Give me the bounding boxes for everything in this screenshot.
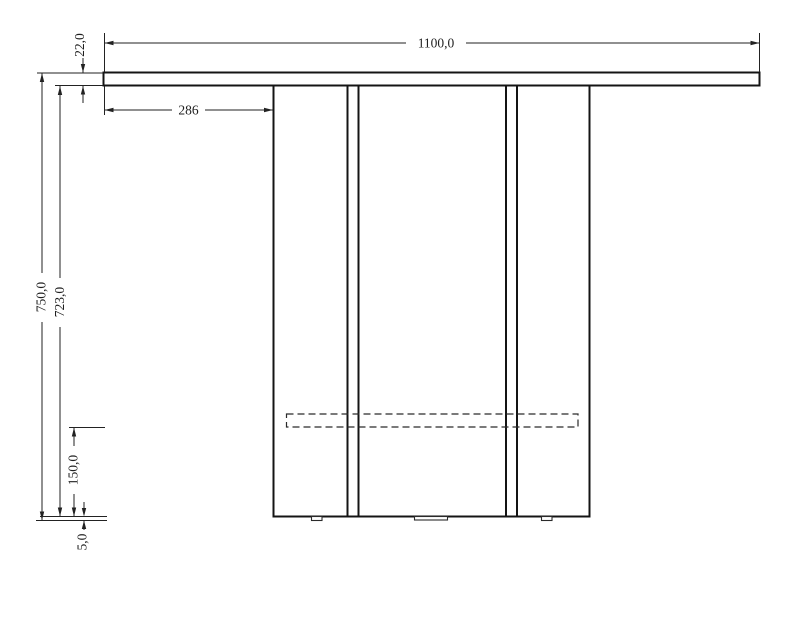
arrowhead-right-icon [751, 41, 760, 45]
arrowhead-down-icon [58, 508, 62, 517]
tabletop [104, 73, 760, 86]
dim-label-base-height: 723,0 [52, 287, 67, 318]
dim-overhang: 286 [105, 86, 274, 118]
dim-tabletop-thickness: 22,0 [72, 33, 87, 103]
table-elevation-drawing: 1100,0 22,0 286 750,0 [0, 0, 800, 621]
technical-drawing-page: 1100,0 22,0 286 750,0 [0, 0, 800, 621]
arrowhead-up-icon [72, 428, 76, 437]
dim-label-tabletop-width: 1100,0 [418, 36, 455, 51]
dim-label-tabletop-thickness: 22,0 [72, 33, 87, 57]
dim-base-height: 723,0 [40, 86, 107, 517]
dim-tabletop-width: 1100,0 [105, 33, 760, 72]
arrowhead-up-icon [58, 86, 62, 95]
dim-label-overhang: 286 [178, 103, 199, 118]
arrowhead-left-icon [105, 108, 114, 112]
dim-rail-height: 150,0 [66, 428, 106, 517]
dim-label-rail-height: 150,0 [66, 455, 81, 486]
pedestal-base [274, 86, 590, 517]
dim-label-foot-height: 5,0 [75, 533, 90, 550]
arrowhead-down-icon [72, 508, 76, 517]
foot-left [312, 517, 323, 521]
foot-center [415, 517, 448, 521]
arrowhead-up-icon [40, 73, 44, 82]
dim-foot-height: 5,0 [75, 502, 90, 550]
dim-overall-height: 750,0 [34, 73, 108, 521]
arrowhead-down-icon [81, 64, 85, 73]
table-geometry [104, 73, 760, 521]
dim-label-overall-height: 750,0 [34, 282, 49, 313]
arrowhead-left-icon [105, 41, 114, 45]
arrowhead-down-icon [82, 508, 86, 517]
arrowhead-up-icon [82, 521, 86, 530]
arrowhead-right-icon [264, 108, 273, 112]
arrowhead-up-icon [81, 86, 85, 95]
foot-right [542, 517, 553, 521]
